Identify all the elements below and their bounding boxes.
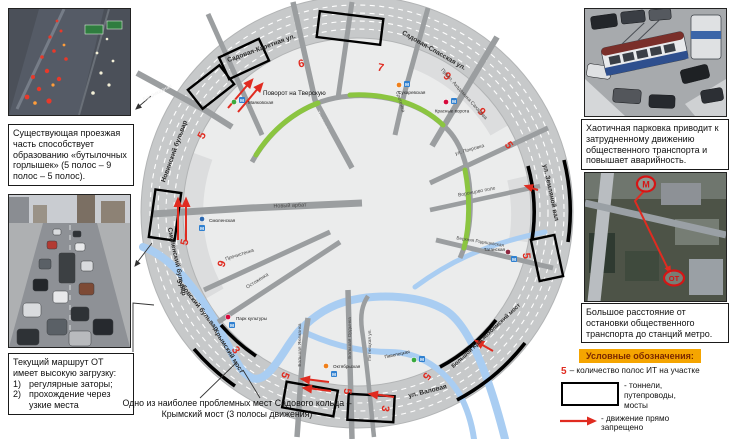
metro-line-dot (225, 314, 230, 319)
aerial-illustration: М ОТ (585, 173, 726, 301)
turn-note: Поворот на Тверскую (263, 90, 326, 97)
note-bottleneck: Существующая проезжая часть способствует… (8, 124, 134, 186)
metro-line-dot (396, 82, 401, 87)
svg-text:М: М (200, 226, 204, 231)
svg-text:М: М (230, 323, 234, 328)
legend-arrow-icon (559, 415, 599, 427)
route-load-item-number: 2) (13, 389, 27, 411)
lane-count: 5 (520, 252, 532, 259)
day-traffic-illustration (9, 195, 130, 347)
metro-station-label: Красные ворота (435, 109, 470, 114)
metro-line-dot (231, 99, 236, 104)
street-label: Большая Якиманка (297, 323, 303, 367)
lane-count: 5 (341, 388, 354, 395)
metro-station-label: Сухаревская (398, 90, 426, 95)
legend-lane-text: – количество полос ИТ на участке (570, 366, 700, 376)
metro-station-label: Октябрьская (333, 364, 361, 369)
svg-text:М: М (240, 98, 244, 103)
legend-lane-symbol: 5 (561, 366, 567, 378)
metro-station-label: Маяковская (248, 100, 274, 105)
metro-line-dot (443, 99, 448, 104)
route-load-item-number: 1) (13, 379, 27, 390)
legend-arrow-text: - движение прямо запрещено (601, 414, 669, 434)
street-label: Большая Ордынка (347, 317, 353, 359)
night-traffic-illustration (9, 9, 130, 115)
aerial-metro-marker: М (642, 180, 650, 190)
trolleybus-illustration (585, 9, 726, 116)
svg-text:М: М (452, 99, 456, 104)
photo-night-congestion (8, 8, 131, 116)
note-distance: Большое расстояние от остановки обществе… (581, 303, 729, 343)
svg-text:М: М (512, 257, 516, 262)
photo-day-congestion (8, 194, 131, 348)
street-label: Новый арбат (273, 201, 307, 209)
metro-line-dot (411, 357, 416, 362)
legend-tunnel-text: - тоннели, путепроводы, мосты (624, 381, 676, 411)
aerial-stop-marker: ОТ (669, 274, 680, 283)
note-parking: Хаотичная парковка приводит к затрудненн… (581, 119, 729, 170)
legend-tunnel-swatch (561, 382, 619, 406)
svg-text:М: М (405, 82, 409, 87)
map-caption: Одно из наиболее проблемных мест Садовог… (112, 398, 362, 420)
metro-line-dot (323, 363, 328, 368)
slide: 5 6 7 9 9 5 5 5 3 5 5 3 9 5 Садовая-Каре… (0, 0, 730, 439)
legend: Условные обозначения: 5 – количество пол… (559, 349, 730, 433)
photo-aerial-distance: М ОТ (584, 172, 727, 302)
metro-station-label: Таганская (484, 247, 506, 252)
widened-section-east (518, 178, 522, 241)
street-label: Пятницкая ул. (367, 329, 373, 361)
metro-station-label: Смоленская (209, 218, 236, 223)
metro-line-dot (199, 216, 204, 221)
photo-chaotic-parking (584, 8, 727, 117)
route-load-intro: Текущий маршрут ОТ имеет высокую загрузк… (13, 357, 129, 379)
legend-title: Условные обозначения: (579, 349, 701, 363)
metro-station-label: Парк культуры (236, 316, 267, 321)
metro-line-dot (505, 249, 510, 254)
svg-text:М: М (420, 357, 424, 362)
route-load-item-text: регулярные заторы; (29, 379, 129, 390)
svg-text:М: М (332, 372, 336, 377)
